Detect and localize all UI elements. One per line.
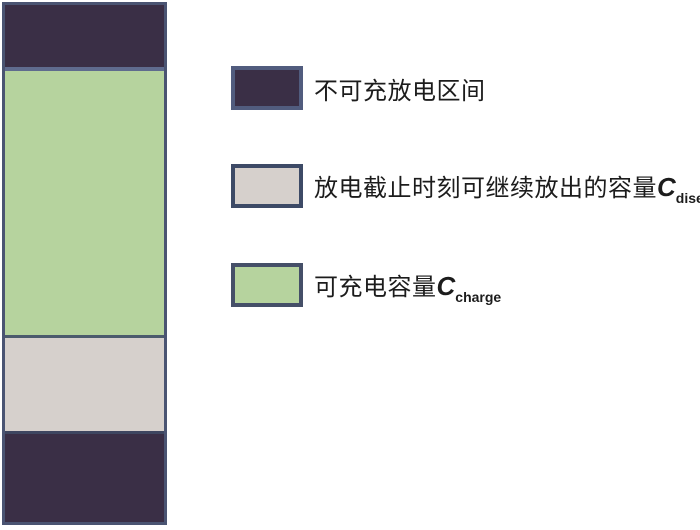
legend-label-text: 可充电容量 [314, 275, 437, 301]
capacity-symbol-C: C [657, 172, 676, 202]
capacity-subscript-charge: charge [455, 289, 501, 305]
bar-segment-nonchargeable-top [5, 5, 164, 71]
legend-item-chargeable: 可充电容量Ccharge [231, 262, 501, 308]
bar-segment-remaining-discharge [5, 338, 164, 434]
legend-item-nonchargeable: 不可充放电区间 [231, 65, 486, 111]
bar-segment-nonchargeable-bottom [5, 434, 164, 522]
legend-label-nonchargeable: 不可充放电区间 [314, 71, 486, 106]
legend-label-text: 不可充放电区间 [314, 79, 486, 105]
legend-swatch-dark [231, 66, 303, 110]
capacity-symbol-C: C [437, 271, 456, 301]
legend-swatch-green [231, 263, 303, 307]
legend-label-text: 放电截止时刻可继续放出的容量 [314, 176, 657, 202]
legend-label-remaining-discharge: 放电截止时刻可继续放出的容量Cdisend [314, 168, 700, 205]
capacity-subscript-disend: disend [676, 190, 700, 206]
legend-swatch-gray [231, 164, 303, 208]
capacity-bar [2, 2, 167, 525]
legend-item-remaining-discharge: 放电截止时刻可继续放出的容量Cdisend [231, 163, 700, 209]
figure-canvas: 不可充放电区间 放电截止时刻可继续放出的容量Cdisend 可充电容量Cchar… [0, 0, 700, 530]
bar-segment-chargeable-capacity [5, 71, 164, 338]
legend-label-chargeable: 可充电容量Ccharge [314, 267, 501, 304]
